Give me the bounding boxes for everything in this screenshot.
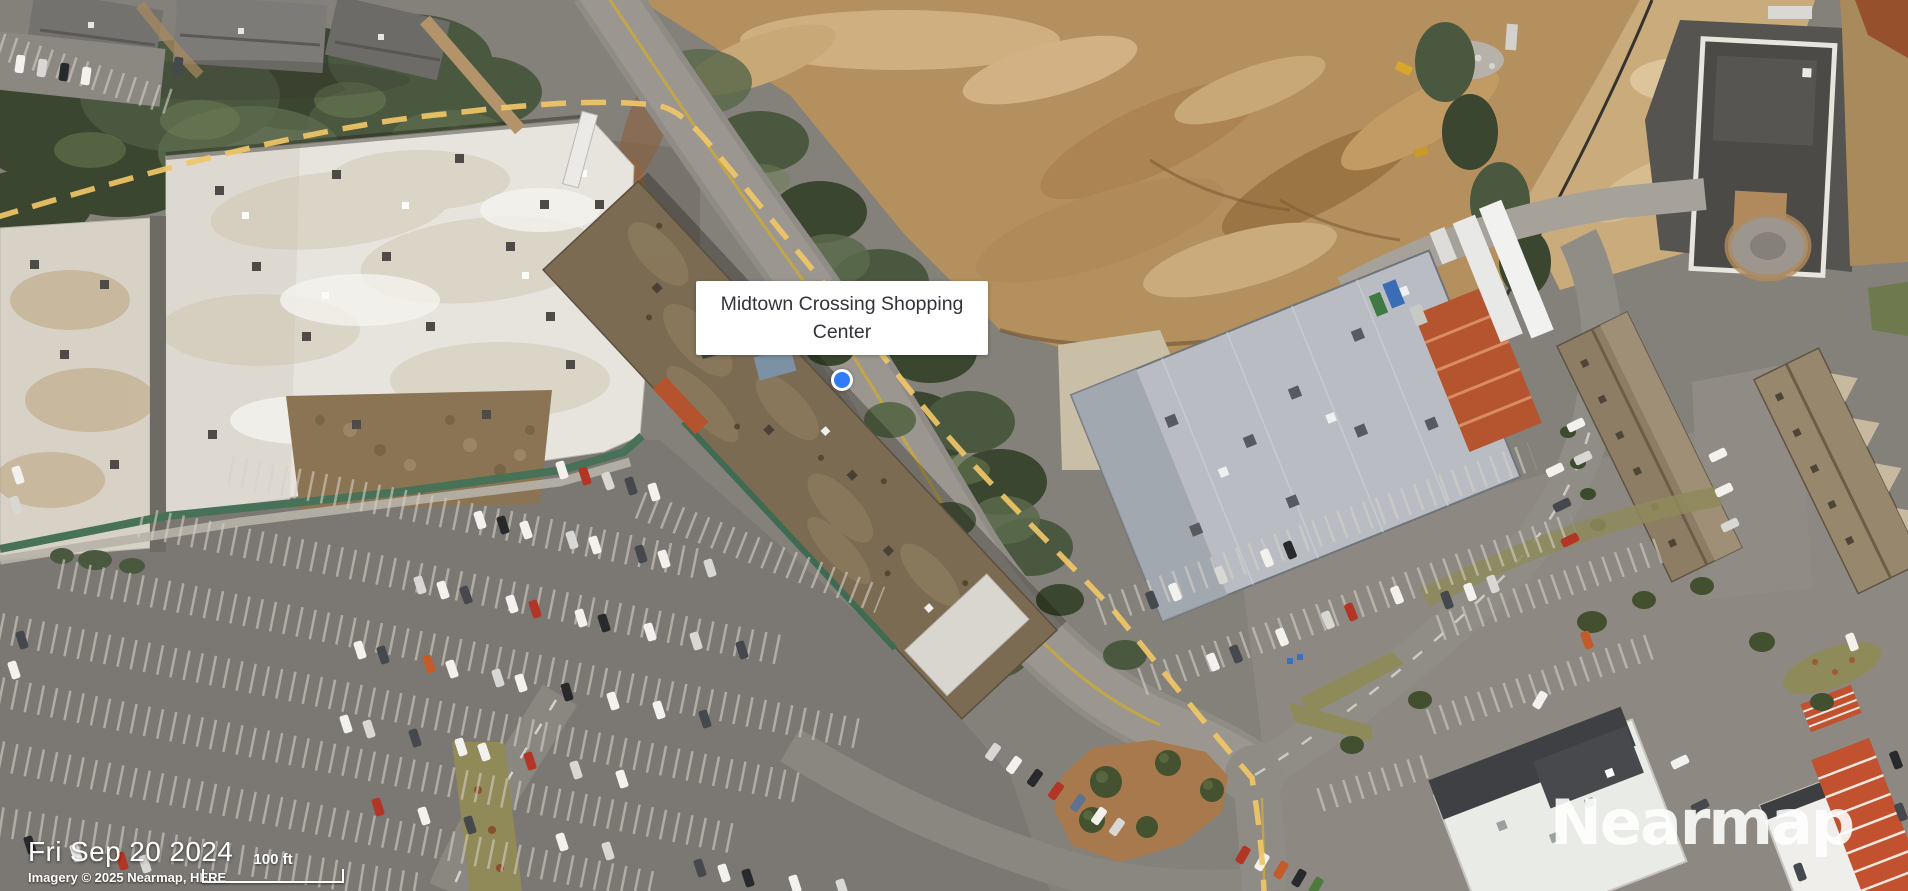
map-canvas[interactable]: [0, 0, 1908, 891]
scale-bar-label: 100 ft: [202, 851, 344, 868]
scale-bar-bracket: [202, 869, 344, 883]
imagery-attribution: Imagery © 2025 Nearmap, HERE: [28, 870, 226, 885]
place-label[interactable]: Midtown Crossing Shopping Center: [696, 281, 988, 355]
nearmap-watermark: Nearmap: [1550, 786, 1853, 859]
scale-bar: 100 ft: [202, 851, 344, 883]
map-viewport: Midtown Crossing Shopping Center Fri Sep…: [0, 0, 1908, 891]
location-marker-icon[interactable]: [831, 369, 853, 391]
